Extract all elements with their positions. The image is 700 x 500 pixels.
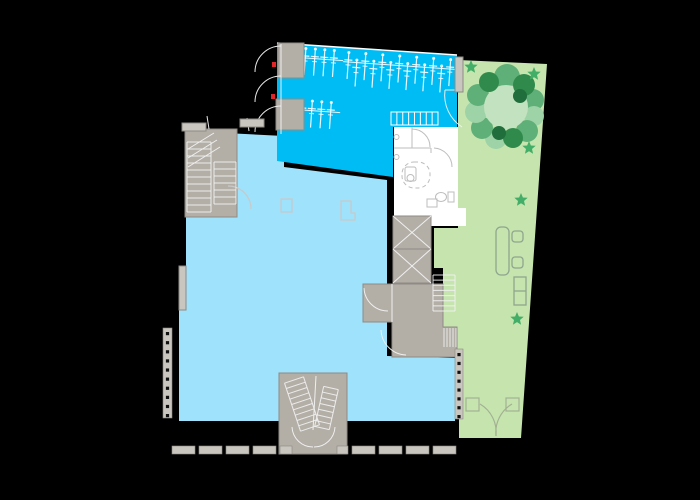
window-dot bbox=[457, 362, 460, 365]
sidewalk-dash bbox=[433, 446, 456, 454]
window-dot bbox=[457, 388, 460, 391]
window-dot bbox=[166, 387, 169, 390]
sidewalk-dash bbox=[352, 446, 375, 454]
elevator-shafts bbox=[393, 216, 431, 283]
window-dot bbox=[166, 405, 169, 408]
sidewalk-dash bbox=[379, 446, 402, 454]
tree-canopy-circle bbox=[492, 126, 506, 140]
window-dot bbox=[457, 353, 460, 356]
window-dot bbox=[166, 396, 169, 399]
tree-canopy-circle bbox=[503, 128, 523, 148]
window-dot bbox=[166, 359, 169, 362]
window-dot bbox=[166, 350, 169, 353]
entrance-stair-block bbox=[279, 373, 347, 454]
window-bar bbox=[455, 57, 463, 92]
window-dot bbox=[166, 378, 169, 381]
sidewalk-dash bbox=[337, 446, 348, 454]
window-dot bbox=[166, 414, 169, 417]
window-bar bbox=[182, 123, 206, 131]
tree-canopy-circle bbox=[479, 72, 499, 92]
sidewalk-dash bbox=[199, 446, 222, 454]
sidewalk-dash bbox=[226, 446, 249, 454]
sidewalk-dash bbox=[172, 446, 195, 454]
window-dot bbox=[166, 368, 169, 371]
door-marker bbox=[272, 62, 276, 67]
window-bar bbox=[240, 119, 264, 127]
window-dot bbox=[457, 415, 460, 418]
floor-plan-drawing bbox=[0, 0, 700, 500]
entry-door-block bbox=[276, 99, 304, 130]
sidewalk-dash bbox=[406, 446, 429, 454]
window-dot bbox=[166, 341, 169, 344]
tree-canopy-circle bbox=[513, 89, 527, 103]
window-dot bbox=[457, 371, 460, 374]
window-dot bbox=[457, 406, 460, 409]
sidewalk-dash bbox=[280, 446, 292, 454]
window-dot bbox=[166, 332, 169, 335]
sidewalk-dash bbox=[253, 446, 276, 454]
window-dot bbox=[457, 397, 460, 400]
floor-plan-page bbox=[0, 0, 700, 500]
window-dot bbox=[457, 380, 460, 383]
door-marker bbox=[271, 94, 275, 99]
window-bar bbox=[179, 266, 186, 310]
entry-door-block bbox=[278, 43, 304, 78]
